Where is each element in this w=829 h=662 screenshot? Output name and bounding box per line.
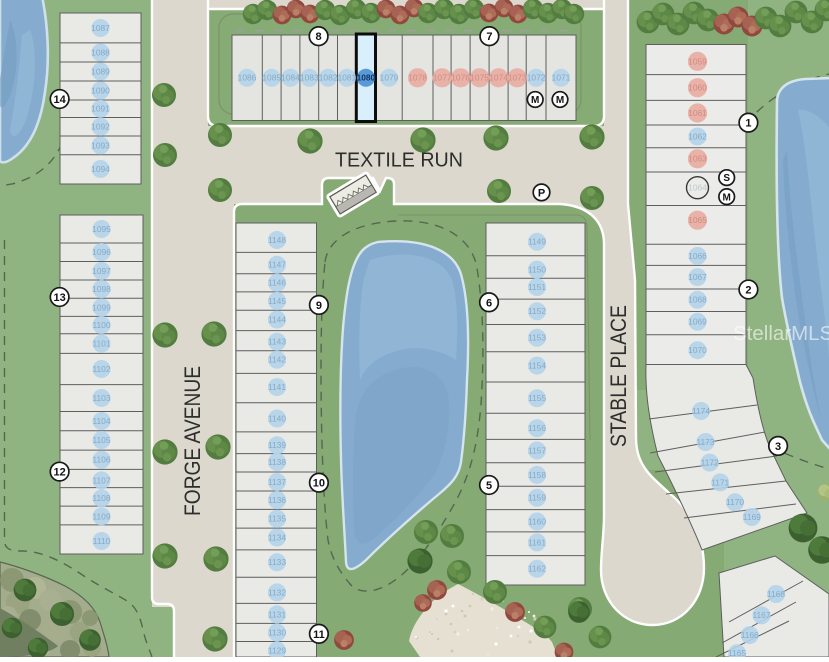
svg-text:FORGE AVENUE: FORGE AVENUE	[180, 366, 205, 516]
svg-text:3: 3	[775, 441, 781, 453]
svg-text:1171: 1171	[711, 477, 729, 487]
svg-text:1100: 1100	[92, 320, 110, 330]
svg-text:8: 8	[316, 31, 322, 43]
svg-text:1167: 1167	[752, 610, 770, 620]
svg-text:1104: 1104	[92, 416, 110, 426]
svg-text:1158: 1158	[528, 470, 546, 480]
svg-text:1084: 1084	[281, 73, 300, 83]
svg-text:13: 13	[53, 292, 65, 304]
svg-text:1133: 1133	[268, 557, 286, 567]
svg-text:1140: 1140	[268, 413, 286, 423]
svg-text:1159: 1159	[528, 493, 546, 503]
svg-text:1069: 1069	[688, 317, 707, 327]
svg-text:1062: 1062	[688, 131, 707, 141]
svg-text:P: P	[538, 187, 545, 199]
svg-text:1174: 1174	[692, 406, 710, 416]
svg-text:1153: 1153	[528, 333, 546, 343]
svg-text:1137: 1137	[268, 477, 286, 487]
svg-text:1146: 1146	[268, 278, 286, 288]
svg-text:1078: 1078	[408, 73, 427, 83]
svg-text:5: 5	[486, 480, 492, 492]
svg-text:1110: 1110	[93, 536, 111, 546]
svg-text:1138: 1138	[268, 457, 286, 467]
svg-text:1079: 1079	[380, 73, 399, 83]
svg-text:1091: 1091	[91, 104, 110, 114]
svg-text:7: 7	[486, 31, 492, 43]
svg-text:1129: 1129	[268, 645, 286, 655]
svg-text:1152: 1152	[528, 306, 546, 316]
svg-text:1173: 1173	[696, 437, 714, 447]
svg-text:TEXTILE RUN: TEXTILE RUN	[335, 150, 463, 172]
svg-text:1148: 1148	[268, 235, 286, 245]
svg-text:1109: 1109	[92, 511, 110, 521]
svg-text:1094: 1094	[91, 164, 110, 174]
svg-text:1107: 1107	[92, 475, 110, 485]
svg-text:1059: 1059	[688, 56, 707, 66]
svg-text:1099: 1099	[92, 302, 111, 312]
svg-text:1105: 1105	[92, 435, 110, 445]
svg-text:1142: 1142	[268, 355, 286, 365]
svg-text:1134: 1134	[268, 532, 286, 542]
svg-text:1: 1	[745, 118, 751, 130]
svg-text:1170: 1170	[726, 497, 744, 507]
svg-text:1103: 1103	[92, 393, 110, 403]
svg-text:1083: 1083	[300, 73, 319, 83]
svg-text:1143: 1143	[268, 337, 286, 347]
svg-text:1081: 1081	[338, 73, 357, 83]
svg-text:1168: 1168	[767, 589, 785, 599]
svg-text:M: M	[723, 192, 731, 203]
svg-text:1061: 1061	[688, 108, 707, 118]
svg-text:1087: 1087	[91, 23, 110, 33]
svg-text:1150: 1150	[528, 265, 546, 275]
svg-text:10: 10	[313, 478, 325, 490]
svg-text:StellarMLS: StellarMLS	[733, 322, 829, 345]
svg-text:1147: 1147	[268, 260, 286, 270]
svg-text:1065: 1065	[688, 215, 707, 225]
svg-text:S: S	[723, 173, 730, 184]
svg-text:12: 12	[53, 467, 65, 479]
svg-text:1092: 1092	[91, 122, 110, 132]
svg-text:1089: 1089	[91, 66, 110, 76]
svg-text:1155: 1155	[528, 393, 546, 403]
svg-text:1064: 1064	[688, 183, 707, 193]
svg-text:1144: 1144	[268, 315, 286, 325]
svg-text:1141: 1141	[268, 382, 286, 392]
svg-text:1160: 1160	[528, 516, 546, 526]
svg-text:1097: 1097	[92, 266, 111, 276]
svg-text:1145: 1145	[268, 296, 286, 306]
svg-text:1135: 1135	[268, 514, 286, 524]
svg-text:1096: 1096	[92, 247, 111, 257]
svg-text:1074: 1074	[489, 73, 508, 83]
svg-text:M: M	[556, 95, 564, 106]
svg-text:M: M	[531, 95, 539, 106]
svg-text:1131: 1131	[268, 609, 286, 619]
svg-text:1136: 1136	[268, 495, 286, 505]
svg-text:1106: 1106	[92, 455, 110, 465]
svg-text:1063: 1063	[688, 154, 707, 164]
svg-text:1095: 1095	[92, 224, 111, 234]
svg-text:1090: 1090	[91, 85, 110, 95]
svg-text:1088: 1088	[91, 47, 110, 57]
svg-text:1066: 1066	[688, 251, 707, 261]
svg-text:1080: 1080	[357, 73, 376, 83]
svg-text:1067: 1067	[688, 272, 707, 282]
svg-text:1156: 1156	[528, 423, 546, 433]
svg-text:9: 9	[316, 300, 322, 312]
svg-text:1169: 1169	[743, 512, 761, 522]
svg-text:1154: 1154	[528, 361, 546, 371]
svg-text:1085: 1085	[262, 73, 281, 83]
svg-text:1101: 1101	[92, 339, 110, 349]
svg-text:1161: 1161	[528, 537, 546, 547]
svg-text:1098: 1098	[92, 284, 111, 294]
svg-text:1070: 1070	[688, 345, 707, 355]
svg-text:1076: 1076	[451, 73, 470, 83]
svg-text:1068: 1068	[688, 295, 707, 305]
svg-text:1151: 1151	[528, 282, 546, 292]
svg-text:1075: 1075	[470, 73, 489, 83]
svg-text:1139: 1139	[268, 440, 286, 450]
svg-text:1086: 1086	[238, 73, 257, 83]
svg-text:1102: 1102	[92, 364, 110, 374]
svg-text:14: 14	[53, 94, 66, 106]
svg-text:1130: 1130	[268, 627, 286, 637]
svg-text:1060: 1060	[688, 83, 707, 93]
svg-text:1073: 1073	[508, 73, 527, 83]
svg-text:1172: 1172	[701, 458, 719, 468]
svg-text:11: 11	[313, 629, 325, 641]
svg-text:2: 2	[745, 284, 751, 296]
svg-text:1157: 1157	[528, 445, 546, 455]
svg-text:1072: 1072	[527, 73, 546, 83]
svg-text:1149: 1149	[528, 237, 546, 247]
svg-text:1082: 1082	[319, 73, 338, 83]
svg-text:1077: 1077	[433, 73, 452, 83]
svg-text:6: 6	[486, 297, 492, 309]
svg-text:1132: 1132	[268, 587, 286, 597]
svg-text:1093: 1093	[91, 140, 110, 150]
svg-text:1071: 1071	[552, 73, 571, 83]
svg-text:1162: 1162	[528, 564, 546, 574]
svg-text:STABLE PLACE: STABLE PLACE	[606, 305, 631, 447]
svg-text:1166: 1166	[741, 630, 759, 640]
svg-text:1165: 1165	[728, 648, 746, 657]
svg-text:1108: 1108	[92, 493, 110, 503]
